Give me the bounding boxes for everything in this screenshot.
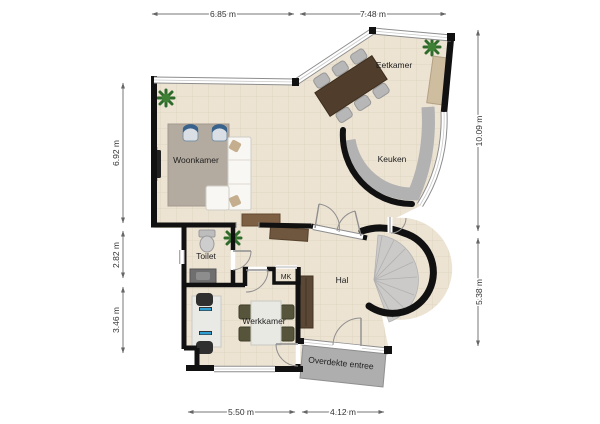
wall-post (384, 346, 392, 354)
office-desk-station (192, 293, 221, 354)
window (154, 80, 296, 82)
work-chair (281, 327, 294, 341)
floor-plan-page: Overdekte entree (0, 0, 600, 424)
dimension-label: 3.46 m (111, 307, 121, 333)
work-chair (239, 327, 252, 341)
hall-sideboard (270, 227, 309, 242)
dimension-label: 2.82 m (111, 242, 121, 268)
room-label-woonkamer: Woonkamer (173, 155, 219, 165)
wall-post (292, 78, 299, 86)
room-label-toilet: Toilet (196, 251, 216, 261)
armchair (212, 124, 227, 141)
dimension-label: 4.12 m (330, 407, 356, 417)
toilet-fixture (199, 230, 215, 252)
sink-basin (196, 272, 210, 280)
wall-post (369, 27, 376, 34)
room-label-hal: Hal (336, 275, 349, 285)
wall-post (298, 338, 304, 344)
toilet-sink (190, 269, 216, 283)
sofa-chaise (206, 186, 229, 210)
dimension-label: 7.48 m (360, 9, 386, 19)
monitor-screen (200, 308, 211, 310)
room-label-eetkamer: Eetkamer (376, 60, 413, 70)
plant-icon (158, 90, 174, 106)
wall (259, 225, 311, 226)
plant-icon (424, 39, 440, 55)
dimension-label: 5.50 m (228, 407, 254, 417)
office-chair (196, 293, 213, 306)
armchair (183, 124, 198, 141)
hall-wardrobe (300, 276, 313, 328)
dimension-label: 5.38 m (474, 279, 484, 305)
room-label-mk: MK (281, 274, 292, 281)
dimension-label: 6.85 m (210, 9, 236, 19)
room-label-keuken: Keuken (378, 154, 407, 164)
dimension-label: 6.92 m (111, 140, 121, 166)
room-label-werkkamer: Werkkamer (242, 316, 285, 326)
floor-plan: Overdekte entree (0, 0, 600, 424)
dimension-label: 10.09 m (474, 116, 484, 147)
wall-post (447, 33, 455, 41)
toilet-bowl (200, 236, 214, 252)
monitor-screen (200, 332, 211, 334)
